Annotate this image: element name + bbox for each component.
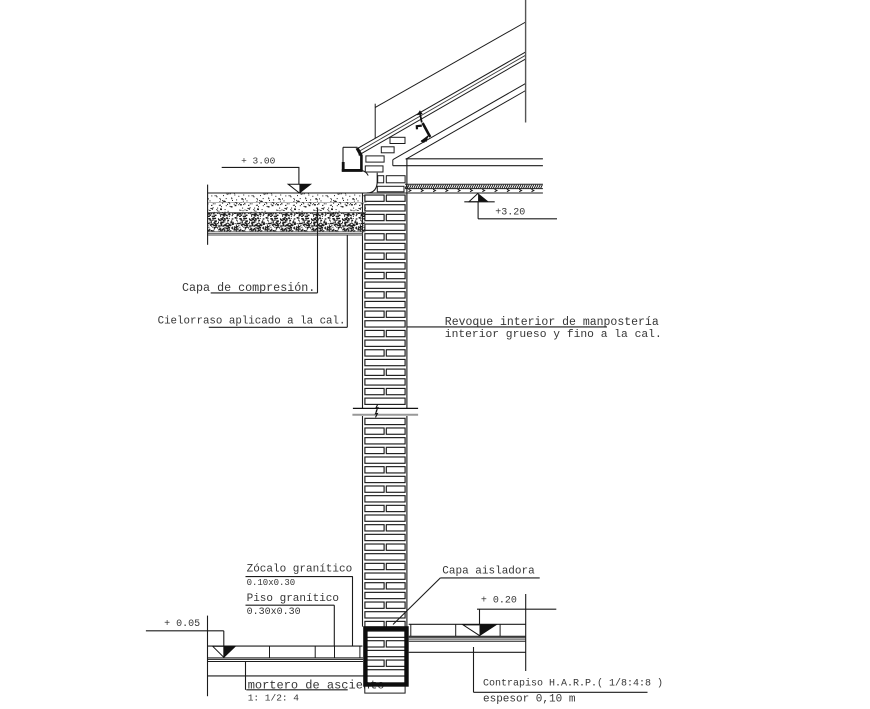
svg-text:+3.20: +3.20 <box>495 208 525 219</box>
svg-text:Capa aisladora: Capa aisladora <box>442 565 535 577</box>
svg-text:Cielorraso aplicado a la cal.: Cielorraso aplicado a la cal. <box>158 315 346 327</box>
svg-text:+ 0.20: + 0.20 <box>481 596 517 607</box>
svg-text:espesor 0,10 m: espesor 0,10 m <box>483 694 576 706</box>
svg-text:Piso granítico: Piso granítico <box>247 593 339 605</box>
svg-text:1: 1/2: 4: 1: 1/2: 4 <box>248 693 300 704</box>
svg-text:+ 3.00: + 3.00 <box>241 155 276 166</box>
svg-text:0.10x0.30: 0.10x0.30 <box>247 578 296 588</box>
svg-text:+ 0.05: + 0.05 <box>164 619 200 630</box>
svg-text:Contrapiso H.A.R.P.( 1/8:4:8 ): Contrapiso H.A.R.P.( 1/8:4:8 ) <box>483 678 663 690</box>
svg-text:0.30x0.30: 0.30x0.30 <box>247 607 301 618</box>
svg-text:interior grueso y fino a la ca: interior grueso y fino a la cal. <box>445 329 662 341</box>
svg-text:Zócalo granítico: Zócalo granítico <box>247 564 353 576</box>
